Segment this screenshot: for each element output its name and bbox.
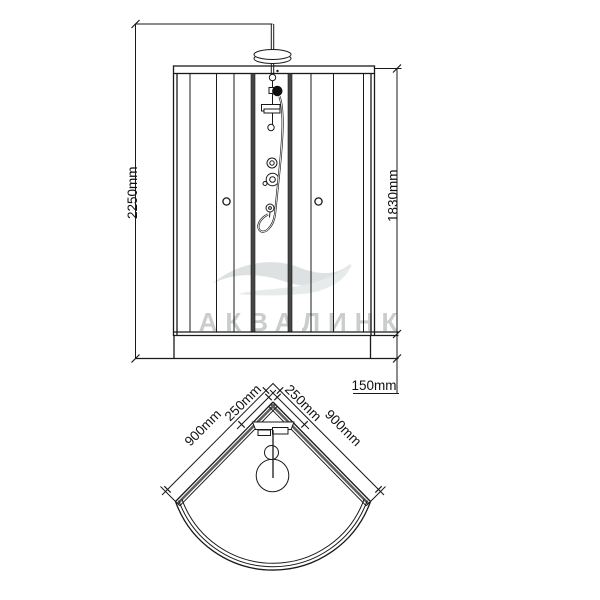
dimension-label-right-wall: 900mm	[322, 407, 364, 449]
dimension-label-cabin-height: 1830mm	[386, 169, 401, 222]
cabin-frame	[174, 66, 399, 336]
drawing-canvas: АКВАЛИНК	[0, 0, 600, 600]
dimension-label-tray-height: 150mm	[351, 378, 396, 393]
hand-shower-head	[272, 86, 282, 96]
shower-column	[258, 74, 282, 231]
shower-tray-top	[176, 499, 371, 570]
front-view: 2250mm 1830mm 150mm	[125, 20, 402, 394]
door-knob-left	[223, 198, 230, 205]
door-knob-right	[315, 198, 322, 205]
centre-panel-top	[253, 422, 295, 492]
pipe-connector	[269, 74, 275, 80]
glass-strip-left	[251, 74, 255, 333]
shower-tray-front	[136, 336, 399, 359]
top-view: 900mm 900mm 250mm 250mm	[161, 382, 386, 570]
technical-drawing: АКВАЛИНК	[0, 0, 600, 600]
dimension-cabin-height: 1830mm 150mm	[351, 65, 401, 394]
dimension-label-total-height: 2250mm	[125, 166, 140, 219]
mixer-knobs	[263, 158, 279, 186]
glass-strip-right	[288, 74, 292, 333]
dimension-label-left-wall: 900mm	[182, 407, 224, 449]
